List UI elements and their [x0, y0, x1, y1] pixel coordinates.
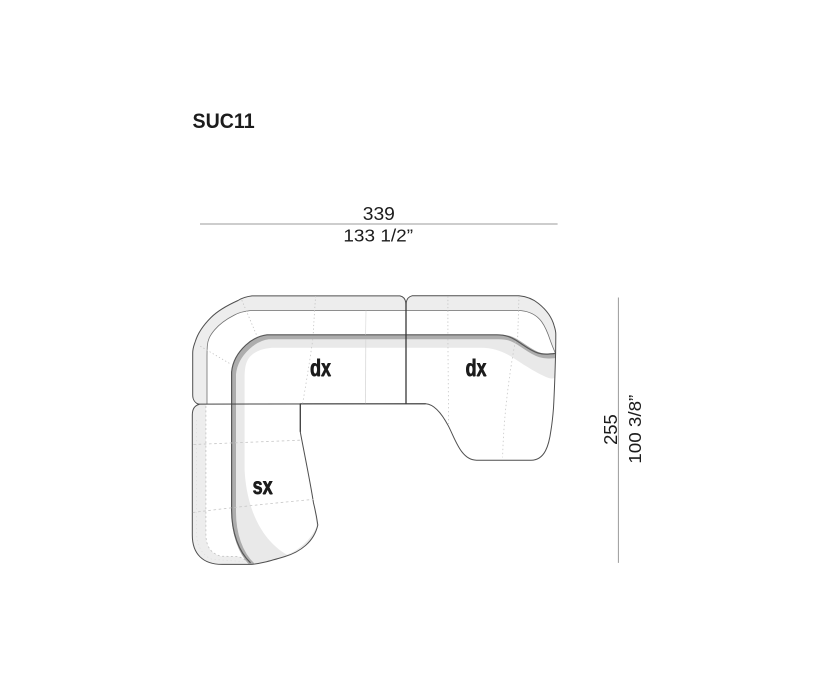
- svg-text:dx: dx: [310, 356, 331, 382]
- svg-text:dx: dx: [466, 356, 487, 382]
- svg-text:255: 255: [601, 414, 621, 445]
- svg-text:133 1/2”: 133 1/2”: [343, 225, 413, 245]
- svg-text:339: 339: [363, 204, 395, 224]
- svg-text:sx: sx: [253, 473, 273, 500]
- svg-text:SUC11: SUC11: [193, 110, 255, 133]
- svg-text:100 3/8”: 100 3/8”: [624, 395, 645, 464]
